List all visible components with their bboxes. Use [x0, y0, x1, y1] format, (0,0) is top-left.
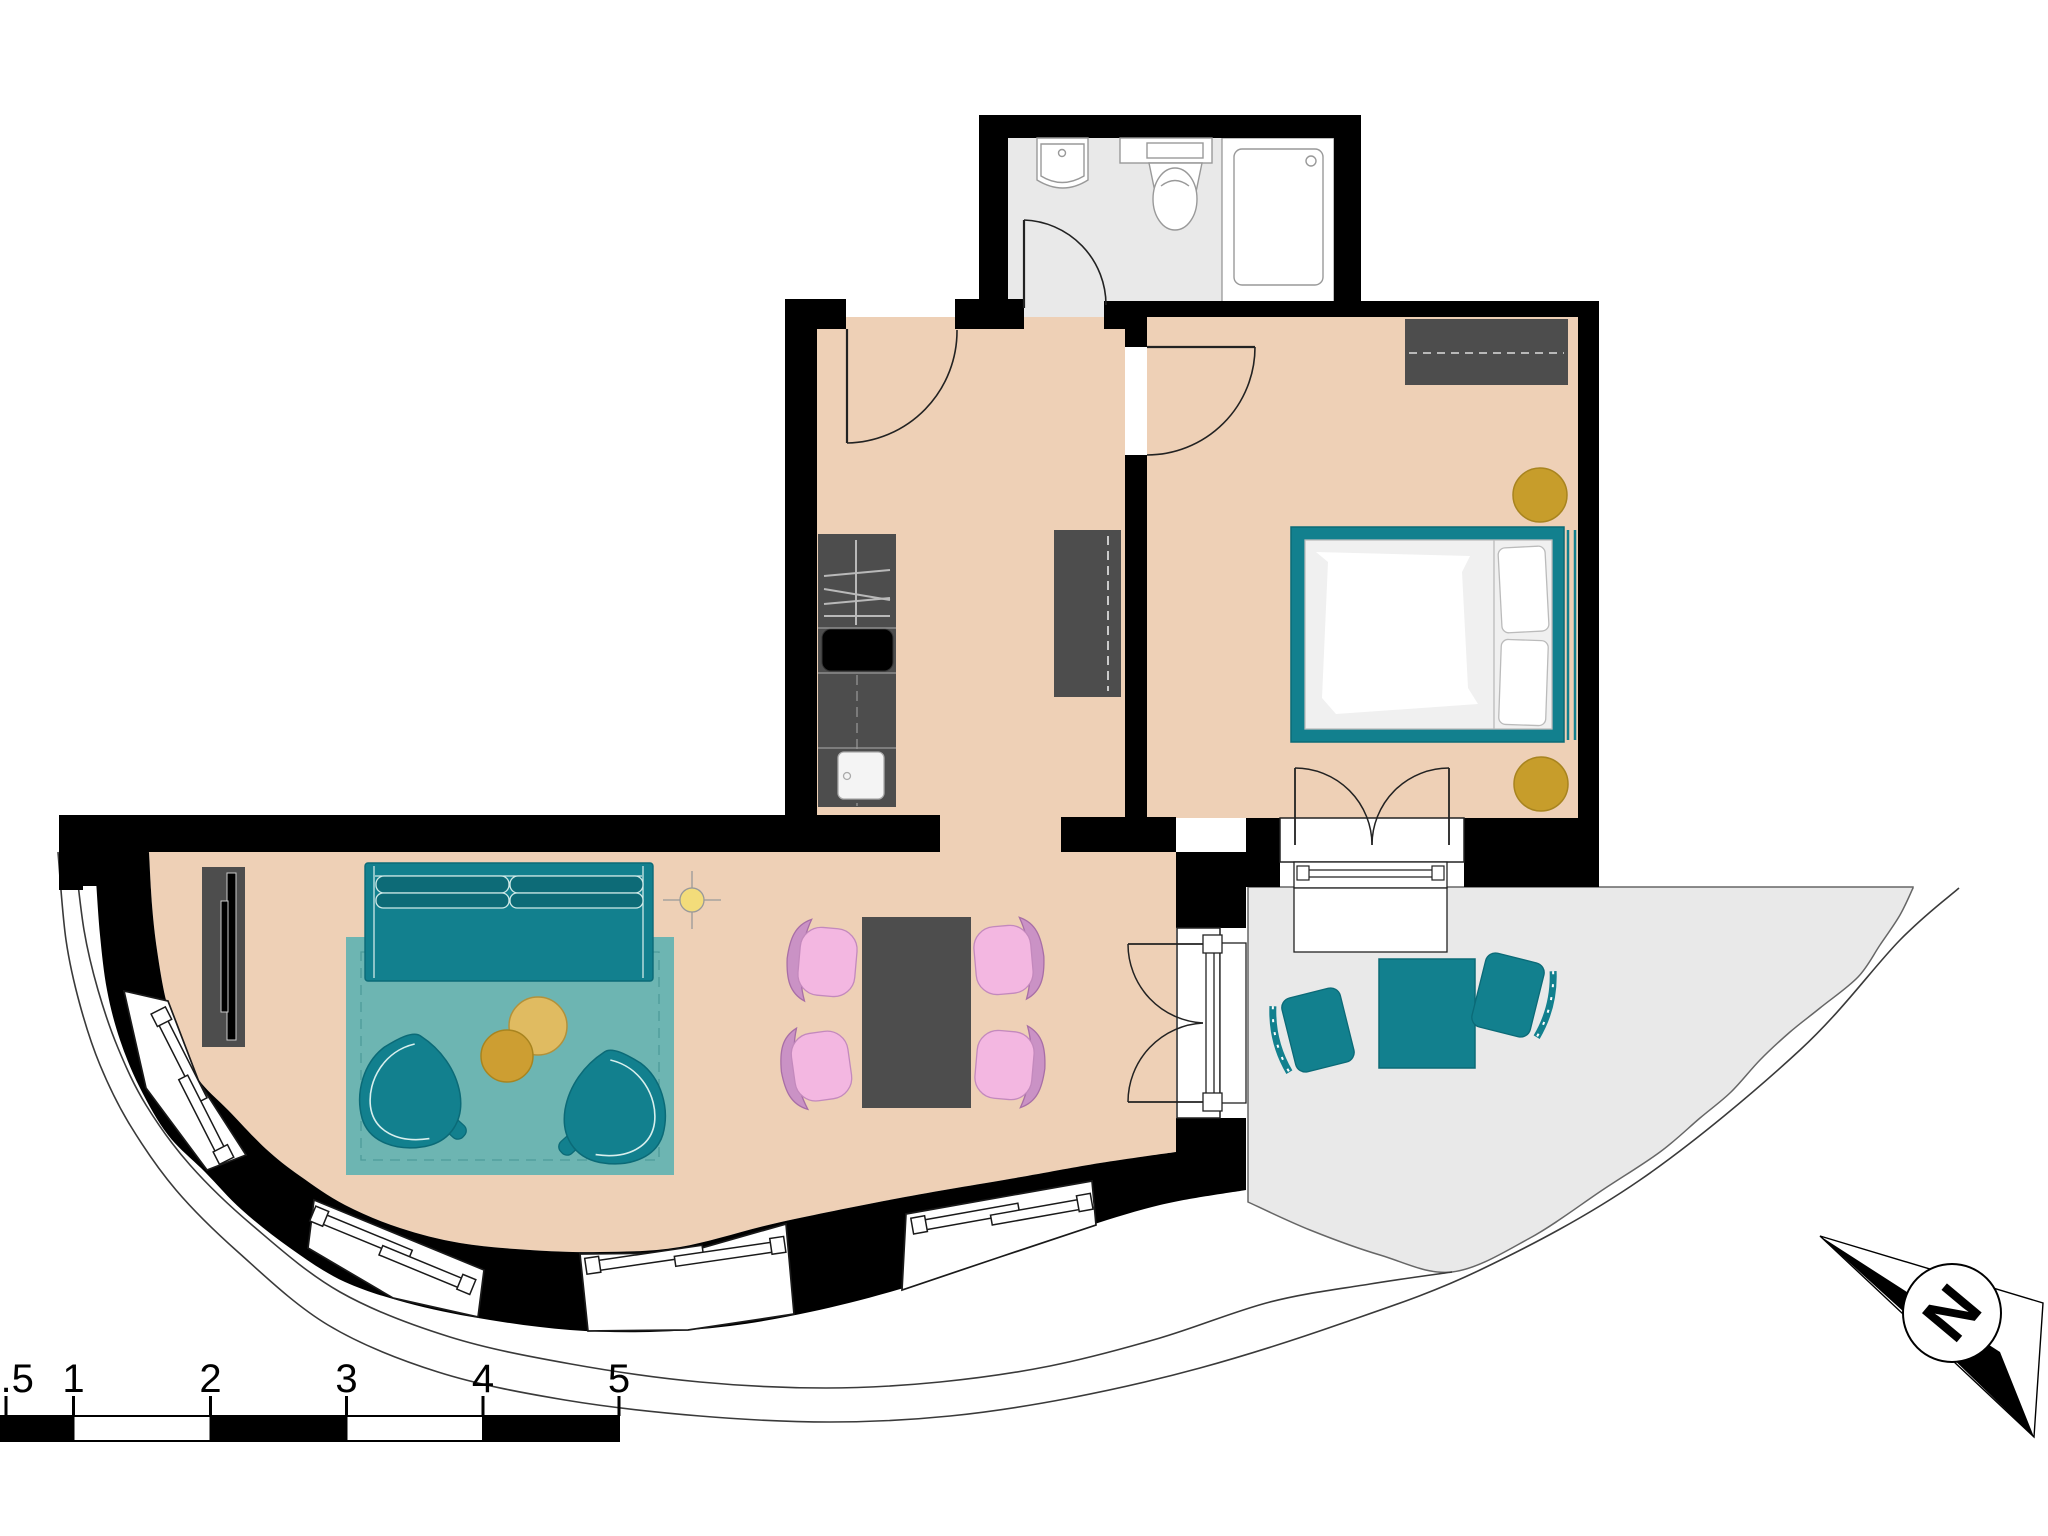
svg-text:1: 1: [62, 1357, 84, 1401]
svg-text:4: 4: [472, 1357, 494, 1401]
svg-text:3: 3: [335, 1357, 357, 1401]
svg-text:2: 2: [199, 1357, 221, 1401]
svg-text:5: 5: [608, 1357, 630, 1401]
svg-text:0.5: 0.5: [0, 1357, 34, 1401]
